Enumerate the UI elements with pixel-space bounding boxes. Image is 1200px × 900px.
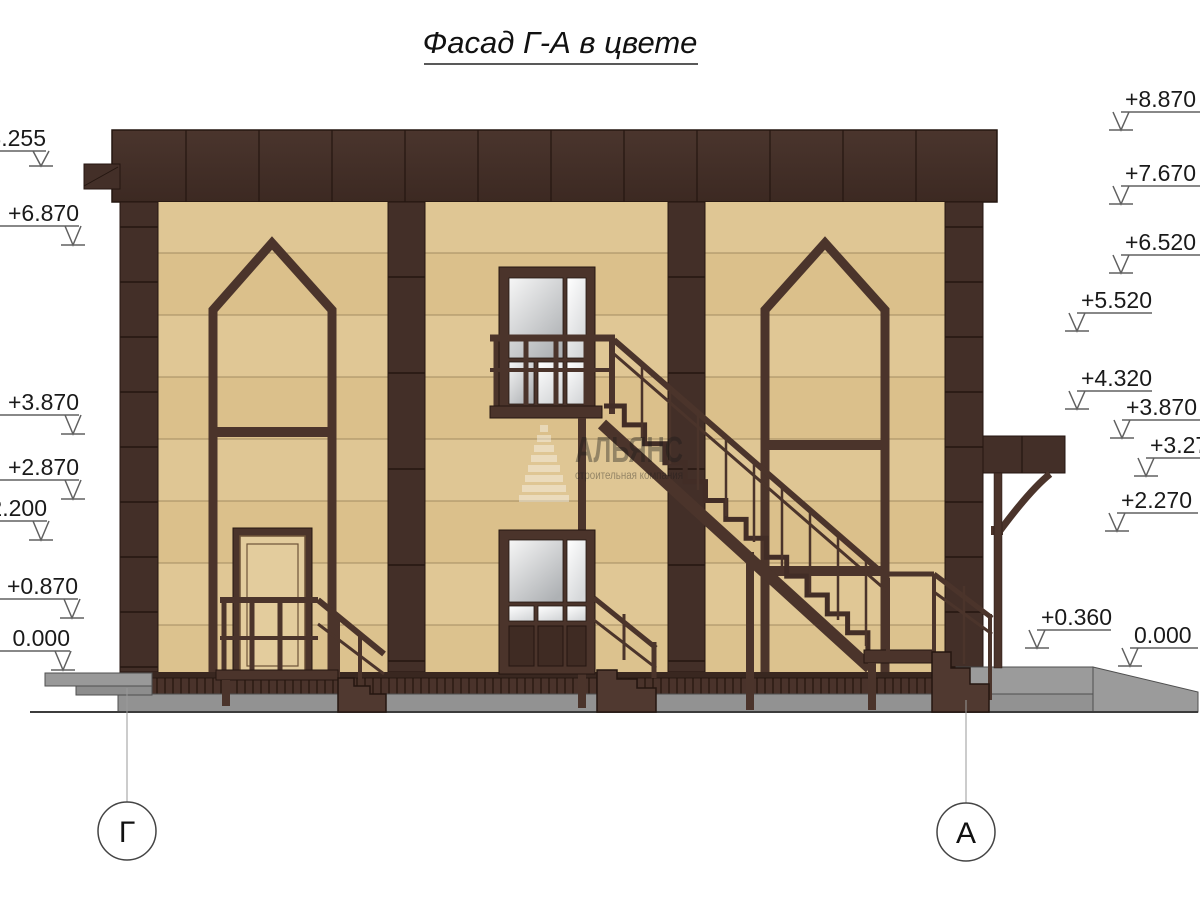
building-facade: АЛЬЯНС строительная компания <box>30 130 1198 712</box>
elevation-mark: +8.255 <box>0 125 53 166</box>
elevation-mark: 0.000 <box>0 625 75 670</box>
stair-mid-landing <box>864 650 934 663</box>
svg-text:+8.255: +8.255 <box>0 125 46 151</box>
svg-text:+2.870: +2.870 <box>8 454 79 480</box>
roof-band <box>84 130 997 202</box>
axis-label-right: А <box>956 817 976 850</box>
balcony-landing <box>490 406 602 418</box>
left-platform <box>45 673 152 686</box>
svg-text:+3.870: +3.870 <box>8 389 79 415</box>
svg-text:+6.870: +6.870 <box>8 200 79 226</box>
elevation-mark: +2.200 <box>0 495 53 540</box>
svg-text:+5.520: +5.520 <box>1081 287 1152 313</box>
left-platform-step <box>76 686 152 695</box>
elevation-mark: +0.360 <box>1025 604 1112 648</box>
svg-text:+0.870: +0.870 <box>7 573 78 599</box>
arch-window-left-crossbar <box>209 427 336 437</box>
svg-text:+3.270: +3.270 <box>1150 432 1200 458</box>
canopy-post <box>994 473 1002 668</box>
svg-text:+3.870: +3.870 <box>1126 394 1197 420</box>
elevation-mark: +3.870 <box>0 389 85 434</box>
elevation-mark: +8.870 <box>1109 86 1200 130</box>
axis-markers: Г А <box>98 688 995 861</box>
svg-text:+2.270: +2.270 <box>1121 487 1192 513</box>
svg-text:0.000: 0.000 <box>12 625 70 651</box>
canopy-beam <box>983 436 1065 473</box>
svg-text:+0.360: +0.360 <box>1041 604 1112 630</box>
elevation-mark: +3.270 <box>1134 432 1200 476</box>
lower-door-glass <box>509 540 563 602</box>
facade-drawing-page: АЛЬЯНС строительная компания +8.255 +6.8… <box>0 0 1200 900</box>
canopy-bracket <box>999 474 1050 532</box>
stair-support-post <box>746 552 754 710</box>
svg-text:+2.200: +2.200 <box>0 495 47 521</box>
elevation-mark: +5.520 <box>1065 287 1152 331</box>
elevation-mark: +6.520 <box>1109 229 1200 273</box>
right-ramp <box>1093 667 1198 712</box>
elevation-mark: 0.000 <box>1118 622 1198 666</box>
svg-text:+7.670: +7.670 <box>1125 160 1196 186</box>
watermark-brand: АЛЬЯНС <box>575 429 683 470</box>
elevation-marks-right: +8.870 +7.670 +6.520 +5.520 +4.320 +3.87… <box>1025 86 1200 666</box>
arch-window-right-crossbar <box>761 440 889 450</box>
pilaster-mid-left <box>388 202 425 672</box>
left-porch-landing <box>216 670 338 680</box>
elevation-marks-left: +8.255 +6.870 +3.870 +2.870 +2.200 +0.87… <box>0 125 85 670</box>
axis-label-left: Г <box>119 816 135 849</box>
page-title: Фасад Г-А в цвете <box>423 25 698 60</box>
elevation-mark: +2.870 <box>0 454 85 499</box>
elevation-mark: +2.270 <box>1105 487 1198 531</box>
elevation-mark: +6.870 <box>0 200 85 245</box>
pilaster-left-corner <box>120 202 158 672</box>
canopy-right <box>983 436 1065 668</box>
roof-band-panel-strip <box>112 130 997 202</box>
drawing-title: Фасад Г-А в цвете <box>423 25 698 64</box>
svg-text:+8.870: +8.870 <box>1125 86 1196 112</box>
watermark-tagline: строительная компания <box>575 470 683 482</box>
svg-text:+6.520: +6.520 <box>1125 229 1196 255</box>
elevation-mark: +7.670 <box>1109 160 1200 204</box>
facade-elevation-canvas: АЛЬЯНС строительная компания +8.255 +6.8… <box>0 0 1200 900</box>
stair-landing-post <box>868 663 876 710</box>
svg-text:+4.320: +4.320 <box>1081 365 1152 391</box>
svg-text:0.000: 0.000 <box>1134 622 1192 648</box>
left-porch-post <box>222 680 230 706</box>
elevation-mark: +0.870 <box>0 573 84 618</box>
